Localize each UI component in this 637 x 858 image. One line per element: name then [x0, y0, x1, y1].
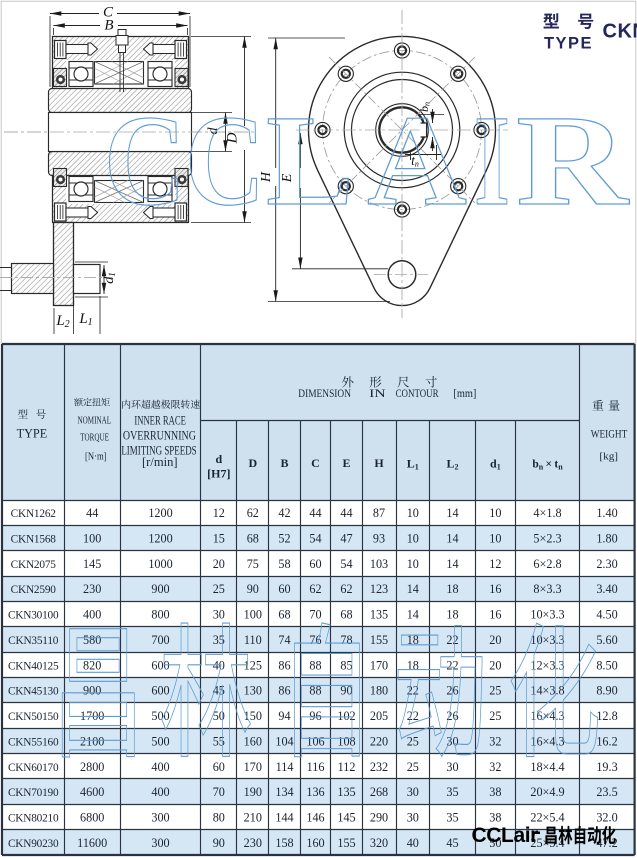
svg-text:102: 102: [337, 709, 355, 723]
svg-text:18: 18: [446, 582, 458, 596]
svg-text:74: 74: [278, 633, 290, 647]
svg-text:4×1.8: 4×1.8: [533, 506, 561, 520]
svg-text:10: 10: [407, 532, 419, 546]
svg-text:OVERRUNNING: OVERRUNNING: [123, 429, 196, 443]
svg-text:86: 86: [278, 684, 290, 698]
svg-text:C: C: [311, 456, 320, 470]
svg-text:1200: 1200: [148, 532, 172, 546]
svg-text:62: 62: [309, 582, 321, 596]
svg-text:180: 180: [370, 684, 388, 698]
svg-text:104: 104: [275, 734, 293, 748]
svg-text:158: 158: [275, 836, 293, 850]
svg-text:12: 12: [213, 506, 225, 520]
svg-text:400: 400: [151, 785, 169, 799]
svg-text:60: 60: [309, 557, 321, 571]
svg-text:CKN70190: CKN70190: [8, 787, 59, 799]
svg-text:6×2.8: 6×2.8: [533, 557, 561, 571]
svg-text:290: 290: [370, 811, 388, 825]
svg-text:CKN2590: CKN2590: [11, 584, 57, 596]
svg-text:25: 25: [489, 684, 501, 698]
svg-text:86: 86: [278, 658, 290, 672]
svg-text:D: D: [248, 456, 257, 470]
svg-text:820: 820: [83, 658, 101, 672]
svg-text:70: 70: [309, 608, 321, 622]
svg-text:5.60: 5.60: [596, 633, 617, 647]
svg-text:14: 14: [446, 532, 458, 546]
svg-text:32: 32: [489, 760, 501, 774]
svg-text:135: 135: [370, 608, 388, 622]
svg-text:114: 114: [276, 760, 294, 774]
svg-text:44: 44: [340, 506, 352, 520]
svg-text:170: 170: [244, 760, 262, 774]
svg-text:16: 16: [489, 582, 501, 596]
svg-text:WEIGHT: WEIGHT: [591, 429, 628, 441]
svg-text:68: 68: [340, 608, 352, 622]
svg-text:136: 136: [306, 785, 324, 799]
svg-text:1.80: 1.80: [596, 532, 617, 546]
svg-text:CKN45130: CKN45130: [8, 686, 59, 698]
svg-text:88: 88: [309, 658, 321, 672]
svg-text:14: 14: [407, 582, 419, 596]
svg-text:8×3.3: 8×3.3: [533, 582, 561, 596]
svg-text:800: 800: [151, 608, 169, 622]
svg-text:14×3.8: 14×3.8: [530, 684, 564, 698]
svg-text:16.2: 16.2: [596, 734, 617, 748]
svg-text:268: 268: [370, 785, 388, 799]
svg-text:100: 100: [244, 608, 262, 622]
svg-text:80: 80: [213, 811, 225, 825]
svg-text:96: 96: [309, 709, 321, 723]
svg-text:94: 94: [278, 709, 290, 723]
svg-text:500: 500: [151, 734, 169, 748]
svg-text:CCLair: CCLair: [472, 824, 539, 847]
svg-text:A: A: [367, 89, 467, 233]
svg-text:47: 47: [340, 532, 352, 546]
svg-text:10: 10: [407, 557, 419, 571]
svg-text:30: 30: [213, 608, 225, 622]
svg-text:54: 54: [340, 557, 352, 571]
svg-text:CKN90230: CKN90230: [8, 838, 59, 850]
svg-text:[N·m]: [N·m]: [85, 452, 107, 463]
svg-text:CKN55160: CKN55160: [8, 736, 59, 748]
svg-text:30: 30: [407, 785, 419, 799]
svg-text:10: 10: [489, 532, 501, 546]
svg-text:1.40: 1.40: [596, 506, 617, 520]
svg-text:44: 44: [309, 506, 321, 520]
svg-text:C: C: [185, 89, 265, 233]
svg-text:155: 155: [337, 836, 355, 850]
svg-text:15: 15: [213, 532, 225, 546]
svg-text:8.50: 8.50: [596, 658, 617, 672]
svg-text:8.90: 8.90: [596, 684, 617, 698]
svg-text:210: 210: [244, 811, 262, 825]
svg-text:4600: 4600: [80, 785, 104, 799]
svg-text:CKN30100: CKN30100: [8, 610, 59, 622]
svg-text:[r/min]: [r/min]: [142, 455, 178, 469]
svg-text:22: 22: [446, 658, 458, 672]
svg-text:30: 30: [446, 760, 458, 774]
svg-text:160: 160: [306, 836, 324, 850]
svg-text:116: 116: [307, 760, 325, 774]
svg-text:d: d: [215, 452, 222, 466]
svg-text:CKN1568: CKN1568: [11, 534, 57, 546]
svg-text:[mm]: [mm]: [453, 386, 476, 400]
svg-text:20: 20: [489, 633, 501, 647]
svg-text:580: 580: [83, 633, 101, 647]
svg-text:42: 42: [278, 506, 290, 520]
svg-text:4.50: 4.50: [596, 608, 617, 622]
svg-text:108: 108: [337, 734, 355, 748]
svg-text:20: 20: [489, 658, 501, 672]
svg-text:22×5.4: 22×5.4: [530, 811, 564, 825]
svg-text:CKN60170: CKN60170: [8, 762, 59, 774]
svg-text:205: 205: [370, 709, 388, 723]
svg-text:5×2.3: 5×2.3: [533, 532, 561, 546]
svg-text:68: 68: [247, 532, 259, 546]
svg-text:30: 30: [446, 734, 458, 748]
svg-text:900: 900: [83, 684, 101, 698]
svg-text:45: 45: [446, 836, 458, 850]
svg-text:38: 38: [489, 811, 501, 825]
svg-text:58: 58: [278, 557, 290, 571]
svg-text:62: 62: [247, 506, 259, 520]
svg-text:B: B: [104, 18, 113, 34]
svg-text:30: 30: [407, 811, 419, 825]
svg-text:68: 68: [278, 608, 290, 622]
svg-text:E: E: [342, 456, 350, 470]
svg-text:CKN40125: CKN40125: [8, 660, 59, 672]
svg-text:2100: 2100: [80, 734, 104, 748]
svg-text:1200: 1200: [148, 506, 172, 520]
svg-text:6800: 6800: [80, 811, 104, 825]
svg-text:23.5: 23.5: [596, 785, 617, 799]
svg-text:55: 55: [213, 734, 225, 748]
svg-text:78: 78: [340, 633, 352, 647]
svg-text:300: 300: [151, 811, 169, 825]
svg-text:170: 170: [370, 658, 388, 672]
svg-text:14: 14: [446, 557, 458, 571]
svg-text:146: 146: [306, 811, 324, 825]
svg-text:CKN80210: CKN80210: [8, 813, 59, 825]
svg-text:CKN1262: CKN1262: [11, 508, 57, 520]
svg-text:60: 60: [213, 760, 225, 774]
svg-text:2800: 2800: [80, 760, 104, 774]
svg-text:230: 230: [244, 836, 262, 850]
svg-text:500: 500: [151, 709, 169, 723]
svg-text:32.0: 32.0: [596, 811, 617, 825]
svg-text:16: 16: [489, 608, 501, 622]
svg-text:25: 25: [489, 709, 501, 723]
svg-text:INNER RACE: INNER RACE: [134, 414, 186, 428]
svg-text:IN: IN: [369, 386, 386, 400]
svg-text:TYPE: TYPE: [17, 427, 48, 441]
svg-text:900: 900: [151, 582, 169, 596]
svg-text:10: 10: [407, 506, 419, 520]
svg-text:44: 44: [86, 506, 98, 520]
svg-text:12.8: 12.8: [596, 709, 617, 723]
svg-text:600: 600: [151, 684, 169, 698]
svg-text:CKN35110: CKN35110: [8, 635, 59, 647]
svg-text:1000: 1000: [148, 557, 172, 571]
svg-text:123: 123: [370, 582, 388, 596]
svg-text:87: 87: [373, 506, 385, 520]
svg-text:14: 14: [407, 608, 419, 622]
svg-text:L: L: [266, 89, 354, 233]
svg-text:400: 400: [83, 608, 101, 622]
svg-text:20×4.9: 20×4.9: [530, 785, 564, 799]
svg-text:93: 93: [373, 532, 385, 546]
svg-text:144: 144: [275, 811, 293, 825]
svg-text:R: R: [516, 89, 631, 233]
svg-text:[kg]: [kg]: [599, 451, 618, 463]
svg-text:75: 75: [247, 557, 259, 571]
svg-text:25: 25: [407, 734, 419, 748]
svg-text:3.40: 3.40: [596, 582, 617, 596]
svg-text:85: 85: [340, 658, 352, 672]
svg-text:230: 230: [83, 582, 101, 596]
svg-text:18: 18: [446, 608, 458, 622]
svg-text:20: 20: [213, 557, 225, 571]
svg-text:DIMENSION: DIMENSION: [298, 386, 351, 400]
svg-text:12: 12: [489, 557, 501, 571]
svg-text:CKN: CKN: [603, 21, 637, 43]
svg-text:112: 112: [338, 760, 356, 774]
svg-text:700: 700: [151, 633, 169, 647]
svg-text:110: 110: [244, 633, 262, 647]
svg-text:12×3.3: 12×3.3: [530, 658, 564, 672]
svg-text:220: 220: [370, 734, 388, 748]
svg-text:35: 35: [446, 785, 458, 799]
svg-text:11600: 11600: [77, 836, 107, 850]
svg-text:60: 60: [278, 582, 290, 596]
svg-text:38: 38: [489, 785, 501, 799]
svg-text:145: 145: [83, 557, 101, 571]
svg-text:90: 90: [213, 836, 225, 850]
svg-text:18: 18: [407, 658, 419, 672]
svg-text:103: 103: [370, 557, 388, 571]
svg-text:100: 100: [83, 532, 101, 546]
svg-text:135: 135: [337, 785, 355, 799]
svg-text:300: 300: [151, 836, 169, 850]
svg-text:I: I: [474, 89, 510, 233]
svg-text:10×3.3: 10×3.3: [530, 633, 564, 647]
svg-text:40: 40: [407, 836, 419, 850]
svg-text:19.3: 19.3: [596, 760, 617, 774]
svg-text:54: 54: [309, 532, 321, 546]
svg-text:25: 25: [213, 582, 225, 596]
svg-text:32: 32: [489, 734, 501, 748]
svg-text:52: 52: [278, 532, 290, 546]
svg-text:90: 90: [247, 582, 259, 596]
svg-text:TORQUE: TORQUE: [80, 433, 109, 444]
svg-text:25: 25: [407, 760, 419, 774]
svg-text:160: 160: [244, 734, 262, 748]
svg-text:B: B: [280, 456, 288, 470]
svg-text:35: 35: [446, 811, 458, 825]
svg-text:134: 134: [275, 785, 293, 799]
svg-text:14: 14: [446, 506, 458, 520]
svg-text:NOMINAL: NOMINAL: [78, 416, 112, 427]
svg-text:2.30: 2.30: [596, 557, 617, 571]
svg-text:C: C: [104, 89, 186, 233]
svg-text:16×4.3: 16×4.3: [530, 734, 564, 748]
svg-text:[H7]: [H7]: [207, 467, 230, 481]
svg-text:TYPE: TYPE: [544, 35, 593, 53]
svg-text:H: H: [374, 456, 384, 470]
svg-text:130: 130: [244, 684, 262, 698]
svg-text:145: 145: [337, 811, 355, 825]
svg-text:35: 35: [213, 633, 225, 647]
svg-text:CONTOUR: CONTOUR: [396, 386, 439, 400]
svg-text:10: 10: [489, 506, 501, 520]
svg-text:62: 62: [340, 582, 352, 596]
svg-text:CKN50150: CKN50150: [8, 711, 59, 723]
svg-text:190: 190: [244, 785, 262, 799]
svg-text:320: 320: [370, 836, 388, 850]
svg-text:22: 22: [446, 633, 458, 647]
svg-text:155: 155: [370, 633, 388, 647]
svg-text:232: 232: [370, 760, 388, 774]
svg-text:106: 106: [306, 734, 324, 748]
svg-text:18×4.4: 18×4.4: [530, 760, 564, 774]
svg-text:CKN2075: CKN2075: [11, 559, 57, 571]
svg-text:70: 70: [213, 785, 225, 799]
svg-text:10×3.3: 10×3.3: [530, 608, 564, 622]
svg-text:400: 400: [151, 760, 169, 774]
